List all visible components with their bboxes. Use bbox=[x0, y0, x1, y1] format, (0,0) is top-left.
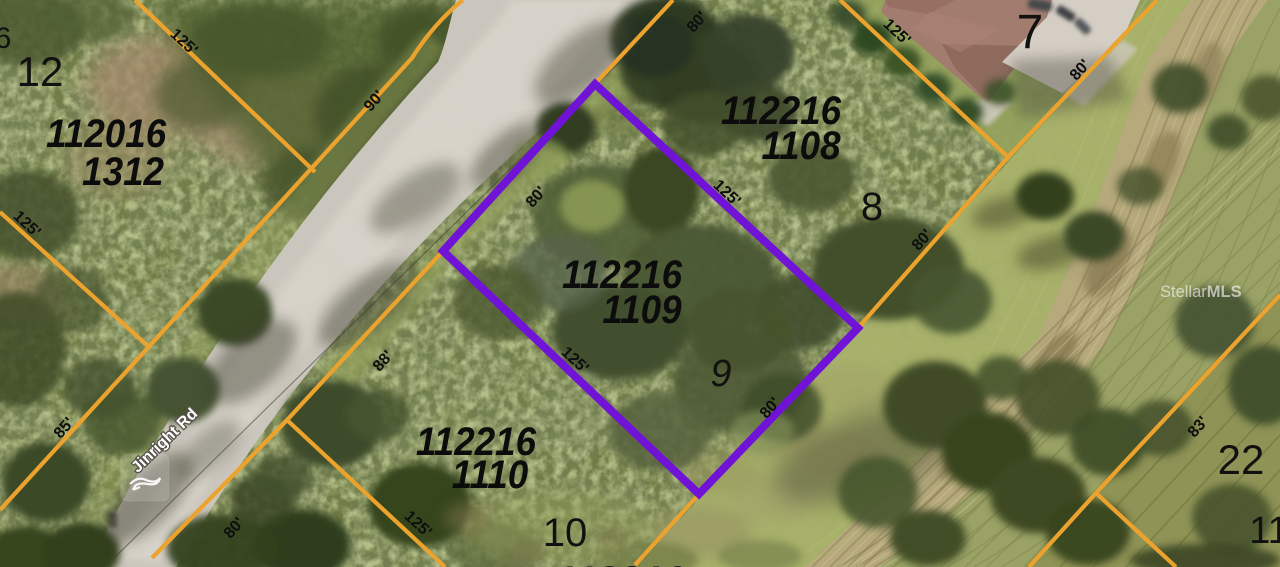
svg-text:9: 9 bbox=[710, 353, 731, 395]
svg-text:1109: 1109 bbox=[602, 288, 682, 333]
svg-text:6: 6 bbox=[0, 22, 11, 55]
svg-text:12: 12 bbox=[17, 48, 64, 95]
svg-text:10: 10 bbox=[543, 511, 588, 555]
svg-text:7: 7 bbox=[1017, 6, 1044, 59]
svg-text:112216: 112216 bbox=[555, 559, 686, 567]
svg-text:StellarMLS: StellarMLS bbox=[1160, 283, 1242, 301]
svg-text:22: 22 bbox=[1218, 436, 1265, 483]
svg-text:11: 11 bbox=[1249, 510, 1280, 552]
svg-text:8: 8 bbox=[861, 185, 883, 229]
svg-text:1108: 1108 bbox=[761, 124, 841, 169]
svg-text:1110: 1110 bbox=[452, 453, 528, 498]
svg-text:1312: 1312 bbox=[82, 150, 164, 195]
